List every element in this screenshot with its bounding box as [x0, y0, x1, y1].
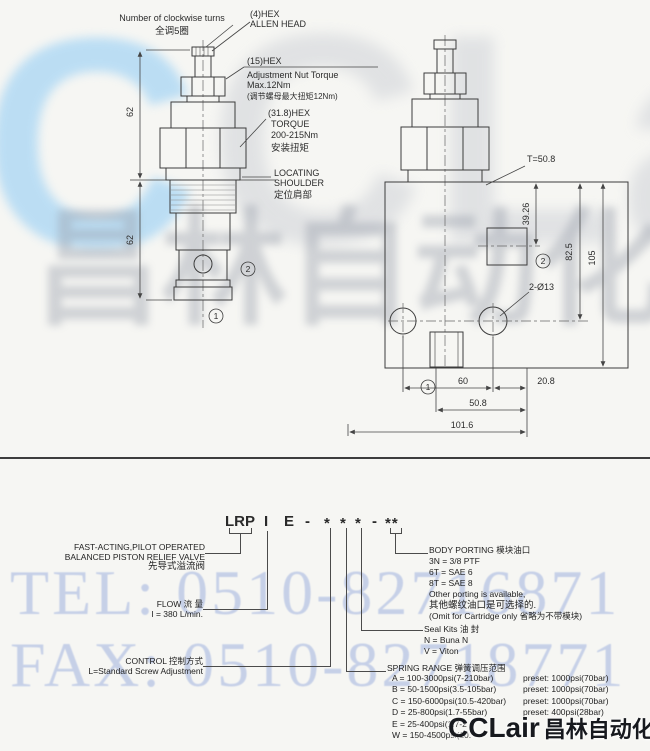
seal-kits-label: Seal Kits 油 封 N = Buna N V = Viton — [424, 624, 479, 657]
connector-seal-horizontal — [361, 630, 423, 631]
seal-kits-opt-v: V = Viton — [424, 646, 479, 657]
connector-seal-vertical — [361, 528, 362, 631]
left-hex-label-2: TORQUE — [271, 119, 309, 129]
body-porting-label: BODY PORTING 模块油口 3N = 3/8 PTF 6T = SAE … — [429, 545, 582, 622]
connector-control-horizontal — [203, 666, 331, 667]
right-dim-208: 20.8 — [537, 376, 555, 386]
connector-body-top — [390, 533, 402, 534]
right-view-dimensions — [348, 166, 603, 437]
left-turns-label-cn: 全调5圈 — [155, 25, 189, 37]
body-porting-note-1: Other porting is available, — [429, 589, 582, 600]
connector-flow-vertical — [267, 531, 268, 610]
right-port1-label: 1 — [426, 382, 431, 392]
seal-kits-title: Seal Kits 油 封 — [424, 624, 479, 635]
function-label: FAST-ACTING,PILOT OPERATED BALANCED PIST… — [65, 542, 205, 572]
right-port2-label: 2 — [541, 256, 546, 266]
control-title: CONTROL 控制方式 — [88, 656, 203, 666]
body-porting-opt-3n: 3N = 3/8 PTF — [429, 556, 582, 567]
watermark-brand-front: CCLair 昌林自动化 — [448, 712, 650, 744]
left-hex-label-1: (31.8)HEX — [268, 108, 310, 118]
body-porting-title: BODY PORTING 模块油口 — [429, 545, 582, 556]
connector-body-stem — [395, 533, 396, 554]
right-dim-825: 82.5 — [564, 243, 574, 261]
left-nut-label-4: (调节螺母最大扭矩12Nm) — [247, 91, 338, 101]
connector-spring-vertical — [346, 528, 347, 672]
model-code-star3: * — [355, 515, 361, 532]
body-porting-note-2: 其他螺纹油口是可选择的. — [429, 600, 582, 611]
datasheet-page: C CLair 昌林自动化 TEL: 0510-82716871 FAX: 05… — [0, 0, 650, 751]
seal-kits-opt-n: N = Buna N — [424, 635, 479, 646]
connector-lrp-stem — [240, 533, 241, 554]
model-code-e: E — [284, 513, 294, 530]
right-dim-508: 50.8 — [469, 398, 487, 408]
left-nut-label-2: Adjustment Nut Torque — [247, 70, 338, 80]
model-code-star2: * — [340, 515, 346, 532]
body-porting-opt-8t: 8T = SAE 8 — [429, 578, 582, 589]
right-dim-105: 105 — [587, 250, 597, 265]
body-porting-note-3: (Omit for Cartridge only 省略为不带模块) — [429, 611, 582, 622]
connector-lrp-horizontal — [205, 553, 241, 554]
model-code-dash2: - — [372, 513, 377, 530]
spring-row-a: A = 100-3000psi(7-210bar) preset: 1000ps… — [392, 673, 609, 684]
technical-drawings: Number of clockwise turns 全调5圈 (4)HEX AL… — [0, 0, 650, 458]
flow-title: FLOW 流 量 — [151, 599, 203, 609]
connector-spring-horizontal — [346, 671, 386, 672]
spring-range-b: B = 50-1500psi(3.5-105bar) — [392, 684, 523, 695]
control-value: L=Standard Screw Adjustment — [88, 666, 203, 676]
connector-control-vertical — [330, 528, 331, 667]
section-divider — [0, 457, 650, 459]
spring-row-b: B = 50-1500psi(3.5-105bar) preset: 1000p… — [392, 684, 609, 695]
spring-preset-b: preset: 1000psi(70bar) — [523, 684, 609, 695]
model-code-star1: * — [324, 515, 330, 532]
model-code-flow: I — [264, 513, 268, 530]
right-dim-3926: 39.26 — [521, 203, 531, 226]
body-block-outline — [385, 35, 628, 368]
left-hex-label-3: 200-215Nm — [271, 130, 318, 140]
flow-value: I = 380 L/min. — [151, 609, 203, 619]
right-holes-label: 2-Ø13 — [529, 282, 554, 292]
left-shoulder-label-3: 定位肩部 — [274, 189, 312, 201]
right-view-centerlines — [388, 246, 588, 339]
spring-range-title: SPRING RANGE 弹簧调压范围 — [387, 663, 609, 673]
left-dim-62-upper: 62 — [125, 107, 135, 117]
spring-range-c: C = 150-6000psi(10.5-420bar) — [392, 696, 523, 707]
body-porting-opt-6t: 6T = SAE 6 — [429, 567, 582, 578]
left-nut-label-3: Max.12Nm — [247, 80, 291, 90]
left-shoulder-label-2: SHOULDER — [274, 178, 325, 188]
left-port1-label: 1 — [214, 311, 219, 321]
flow-label: FLOW 流 量 I = 380 L/min. — [151, 599, 203, 619]
left-shoulder-label-1: LOCATING — [274, 168, 319, 178]
right-dim-1016: 101.6 — [451, 420, 474, 430]
right-dim-60: 60 — [458, 376, 468, 386]
connector-flow-horizontal — [203, 609, 268, 610]
left-view-dimensions — [140, 22, 378, 323]
left-dim-62-lower: 62 — [125, 235, 135, 245]
spring-preset-c: preset: 1000psi(70bar) — [523, 696, 609, 707]
spring-range-a: A = 100-3000psi(7-210bar) — [392, 673, 523, 684]
watermark-brand-front-en: CCLair — [448, 712, 540, 744]
spring-preset-a: preset: 1000psi(70bar) — [523, 673, 609, 684]
left-allen-label-2: ALLEN HEAD — [250, 19, 307, 29]
connector-body-horizontal — [395, 553, 428, 554]
right-thread-label: T=50.8 — [527, 154, 555, 164]
left-hex-label-4: 安装扭矩 — [271, 142, 310, 154]
model-code-stars45: ** — [385, 515, 399, 532]
left-nut-label-1: (15)HEX — [247, 56, 282, 66]
function-line-1: FAST-ACTING,PILOT OPERATED — [65, 542, 205, 552]
watermark-brand-front-cn: 昌林自动化 — [544, 712, 650, 744]
function-line-3: 先导式溢流阀 — [65, 562, 205, 572]
spring-row-c: C = 150-6000psi(10.5-420bar) preset: 100… — [392, 696, 609, 707]
model-code-dash1: - — [305, 513, 310, 530]
left-port2-label: 2 — [246, 264, 251, 274]
left-turns-label-en: Number of clockwise turns — [119, 13, 225, 23]
left-allen-label-1: (4)HEX — [250, 9, 280, 19]
control-label: CONTROL 控制方式 L=Standard Screw Adjustment — [88, 656, 203, 676]
